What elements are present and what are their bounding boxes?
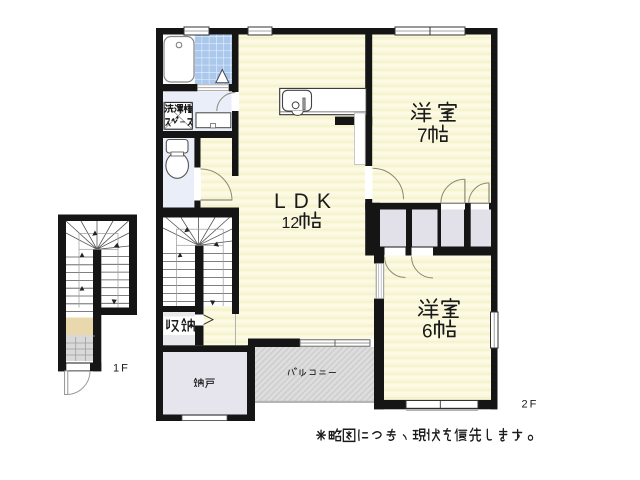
- svg-text:2F: 2F: [522, 399, 539, 411]
- svg-text:1F: 1F: [113, 363, 130, 375]
- svg-text:7: 7: [417, 126, 428, 147]
- svg-text:LDK: LDK: [274, 190, 339, 213]
- svg-text:6: 6: [422, 322, 433, 343]
- svg-text:12: 12: [282, 215, 300, 232]
